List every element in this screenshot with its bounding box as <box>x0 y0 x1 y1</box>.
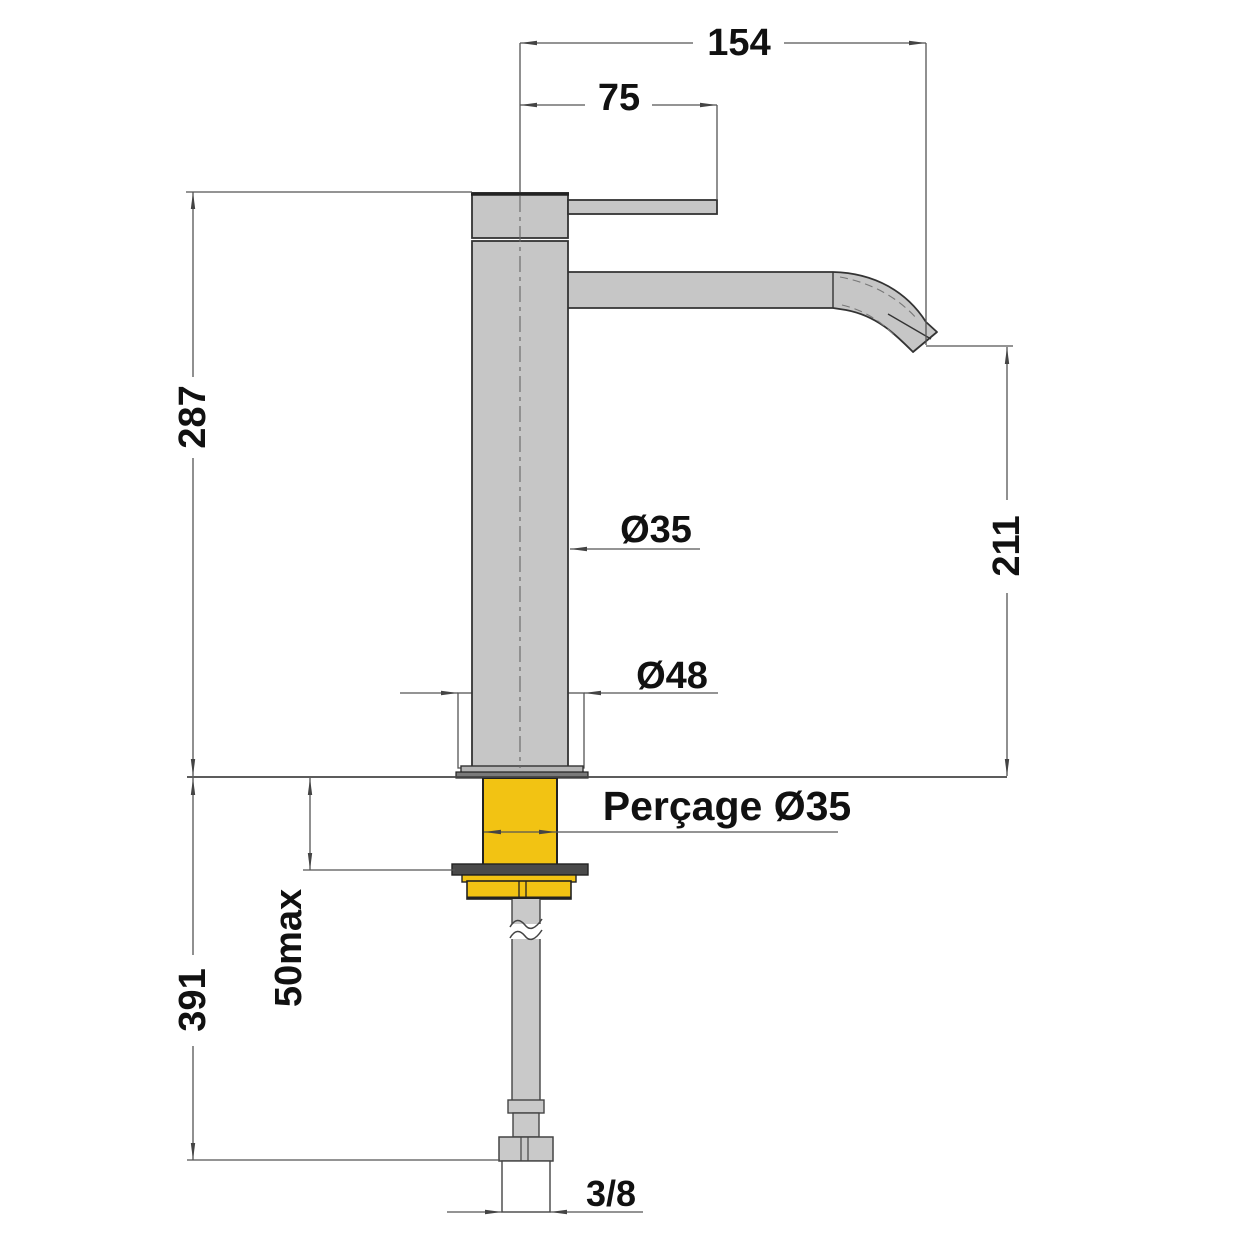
dim-391-label: 391 <box>172 968 214 1031</box>
dimension-391: 391 <box>172 778 214 1160</box>
washer-flange <box>452 864 588 875</box>
drawing-canvas: 154 75 287 391 50max 211 Ø35 Ø48 Perç <box>0 0 1238 1238</box>
spout <box>566 272 937 352</box>
dim-154-label: 154 <box>707 22 770 64</box>
hose-nut <box>499 1137 553 1161</box>
dia35-label: Ø35 <box>620 509 692 551</box>
dim-211-label: 211 <box>986 515 1028 576</box>
thread-3-8-connector <box>502 1161 550 1212</box>
dimension-dia35: Ø35 <box>570 509 700 551</box>
dim-50max-label: 50max <box>268 889 310 1007</box>
dim-75-label: 75 <box>598 77 640 119</box>
pipe-break-symbol <box>510 930 542 939</box>
dimension-75: 75 <box>520 77 717 119</box>
dimension-287: 287 <box>172 192 214 776</box>
supply-pipe-lower <box>512 939 540 1100</box>
brass-shank <box>483 778 557 866</box>
dimension-211: 211 <box>986 347 1028 776</box>
dim-3-8-label: 3/8 <box>586 1173 636 1214</box>
hose-tube <box>513 1113 539 1137</box>
hose-collar <box>508 1100 544 1113</box>
handle-lever <box>568 200 717 214</box>
dim-287-label: 287 <box>172 385 214 448</box>
dimension-154: 154 <box>520 22 926 64</box>
faucet-dimension-drawing: 154 75 287 391 50max 211 Ø35 Ø48 Perç <box>0 0 1238 1238</box>
dimension-50max: 50max <box>268 778 310 1007</box>
dia48-label: Ø48 <box>636 655 708 697</box>
faucet-figure <box>452 43 937 1212</box>
percage-label: Perçage Ø35 <box>603 783 851 829</box>
